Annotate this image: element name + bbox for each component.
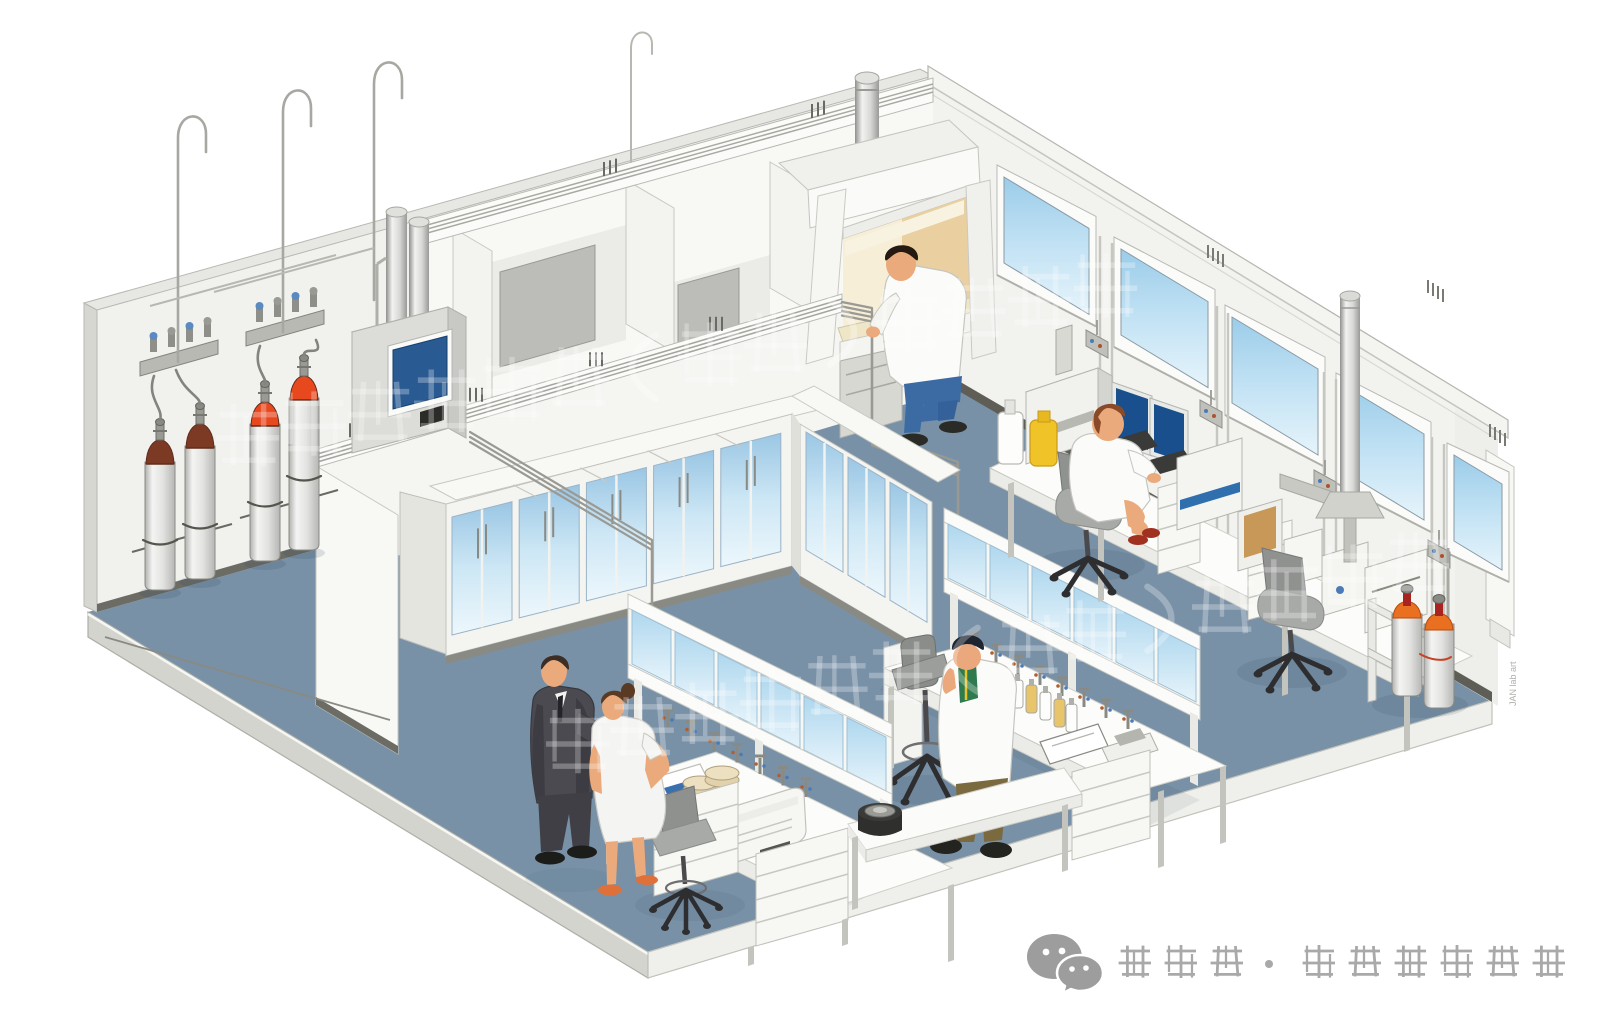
svg-text:JAN lab art: JAN lab art — [1508, 661, 1518, 706]
